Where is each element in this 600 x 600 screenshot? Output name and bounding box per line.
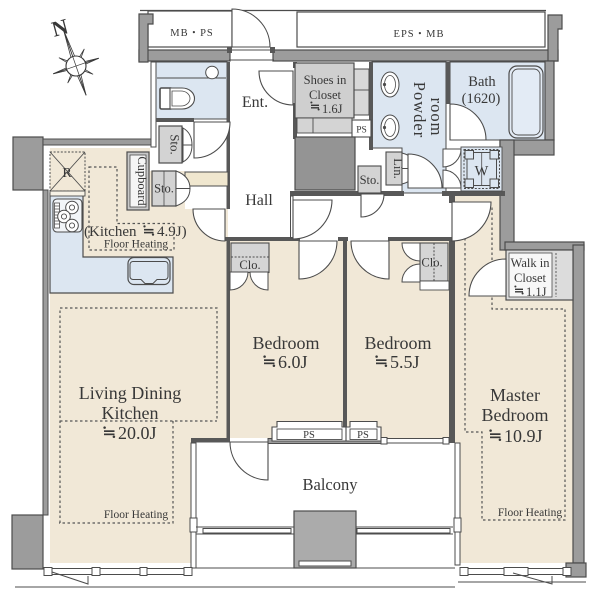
svg-text:MB・PS: MB・PS <box>170 28 214 39</box>
svg-text:5.5J: 5.5J <box>390 352 420 372</box>
svg-text:1.6J: 1.6J <box>322 102 343 116</box>
svg-text:Walk in: Walk in <box>511 256 551 270</box>
svg-text:Floor Heating: Floor Heating <box>104 509 168 521</box>
svg-text:Shoes in: Shoes in <box>304 73 347 87</box>
svg-text:Closet: Closet <box>309 88 341 102</box>
svg-text:PS: PS <box>357 430 369 441</box>
svg-text:Bedroom: Bedroom <box>253 333 320 353</box>
svg-text:6.0J: 6.0J <box>278 352 308 372</box>
svg-text:Sto.: Sto. <box>168 134 183 155</box>
svg-text:PS: PS <box>303 430 315 441</box>
svg-text:Sto.: Sto. <box>360 173 380 187</box>
svg-text:Bedroom: Bedroom <box>365 333 432 353</box>
svg-text:Powder: Powder <box>410 82 429 138</box>
svg-text:Clo.: Clo. <box>421 256 442 270</box>
svg-text:(1620): (1620) <box>462 91 501 107</box>
svg-text:EPS・MB: EPS・MB <box>394 29 445 40</box>
svg-text:R: R <box>62 166 72 181</box>
svg-text:Ent.: Ent. <box>242 94 268 111</box>
svg-text:Floor Heating: Floor Heating <box>104 239 168 251</box>
svg-text:Bedroom: Bedroom <box>482 405 549 425</box>
svg-text:W: W <box>475 164 489 180</box>
svg-text:Sto.: Sto. <box>154 182 174 196</box>
svg-text:Master: Master <box>490 385 540 405</box>
svg-text:Hall: Hall <box>245 192 273 209</box>
svg-text:10.9J: 10.9J <box>504 426 543 446</box>
svg-text:20.0J: 20.0J <box>118 423 157 443</box>
svg-text:Floor Heating: Floor Heating <box>498 507 562 519</box>
svg-text:1.1J: 1.1J <box>526 285 547 299</box>
svg-text:Bath: Bath <box>468 74 496 90</box>
svg-text:PS: PS <box>356 126 367 136</box>
svg-text:Kitchen: Kitchen <box>102 403 159 423</box>
svg-text:Closet: Closet <box>514 271 546 285</box>
svg-text:Balcony: Balcony <box>303 475 359 494</box>
svg-text:room: room <box>427 98 446 137</box>
svg-text:Cupboard: Cupboard <box>135 156 149 206</box>
svg-text:Clo.: Clo. <box>239 258 260 272</box>
svg-text:Living Dining: Living Dining <box>79 383 182 403</box>
